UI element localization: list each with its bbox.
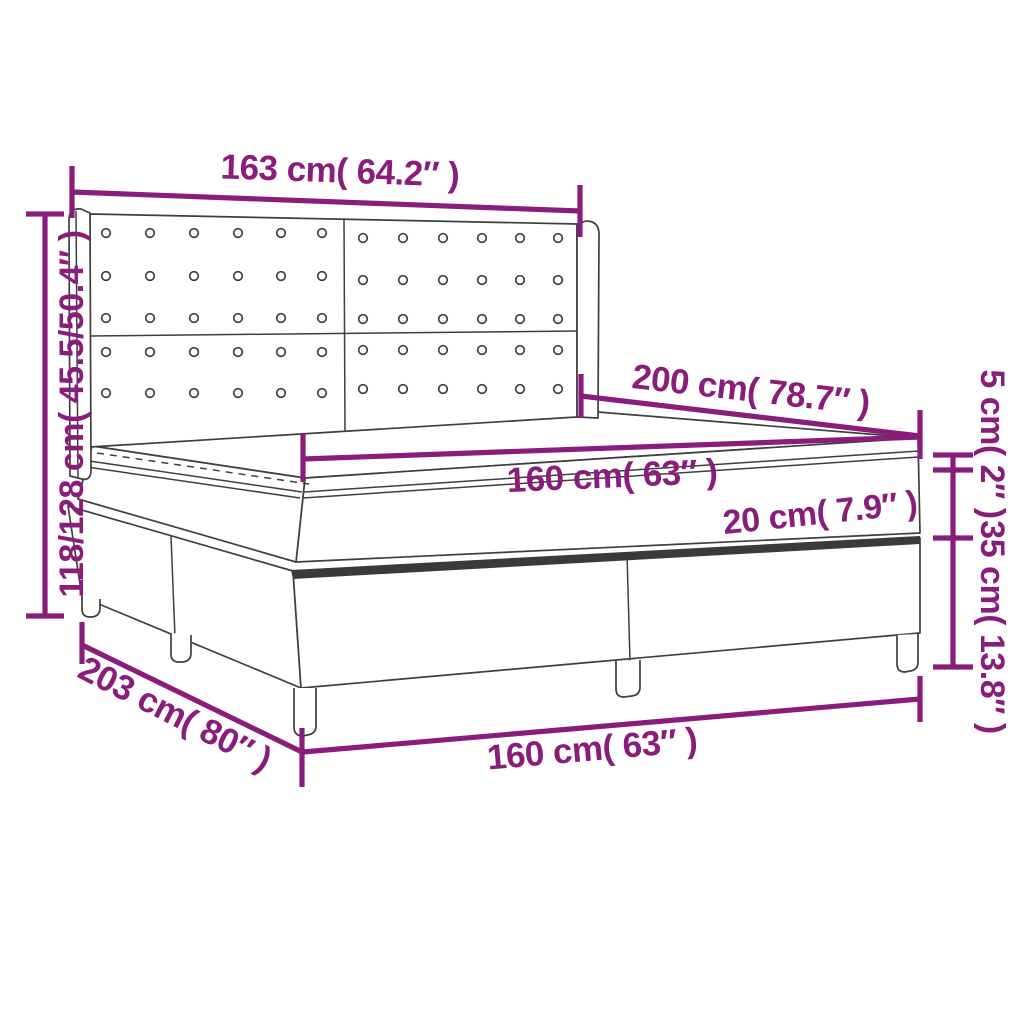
total-height-label: 118/128 cm( 45.5/50.4″ )	[55, 230, 89, 597]
headboard-width-label: 163 cm( 64.2″ )	[220, 149, 460, 192]
base-height-label: 35 cm( 13.8″ )	[975, 520, 1009, 733]
dimension-diagram: 163 cm( 64.2″ ) 118/128 cm( 45.5/50.4″ )…	[0, 0, 1024, 1024]
mattress-width-label: 160 cm( 63″ )	[506, 454, 718, 498]
topper-thickness-label: 5 cm( 2″ )	[975, 369, 1009, 518]
dimension-line-topper-and-base-height	[933, 455, 973, 667]
